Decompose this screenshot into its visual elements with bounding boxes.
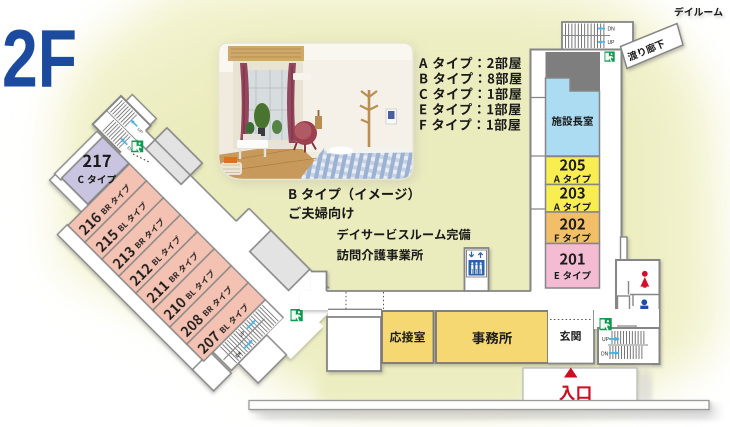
- svg-text:DN: DN: [601, 352, 609, 358]
- svg-text:UP: UP: [608, 40, 616, 46]
- svg-text:DN: DN: [608, 27, 616, 33]
- svg-text:2F: 2F: [2, 14, 77, 105]
- svg-text:UP: UP: [602, 337, 610, 343]
